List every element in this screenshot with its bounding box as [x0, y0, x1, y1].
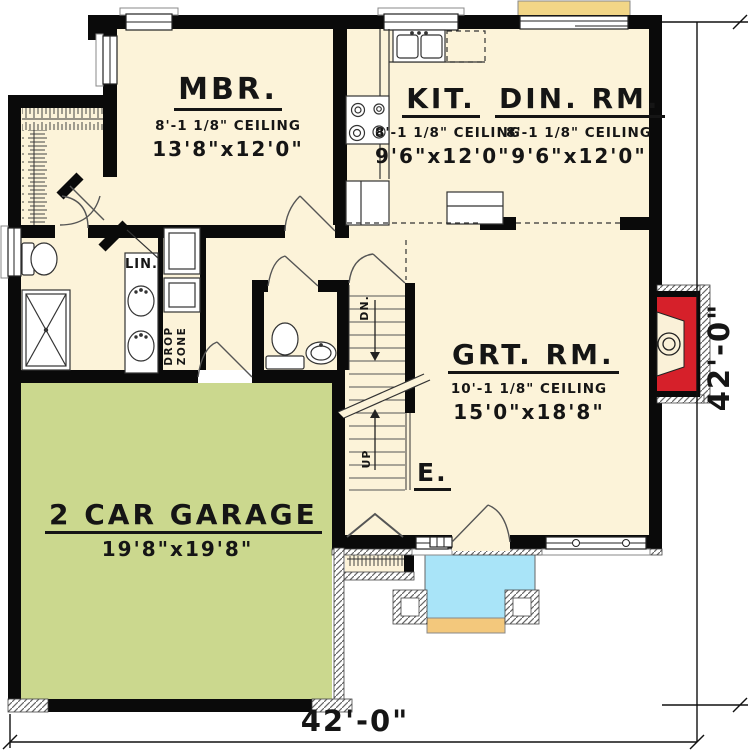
label-dining: DIN. RM. 8'-1 1/8" CEILING 9'6"x12'0" — [495, 84, 663, 168]
room-ceiling-kitchen: 8'-1 1/8" CEILING — [375, 125, 507, 141]
label-drop-zone: DROP ZONE — [163, 326, 189, 366]
garage-pier-left — [8, 699, 48, 712]
room-ceiling-dining: 8'-1 1/8" CEILING — [495, 125, 663, 141]
rear-deck — [518, 1, 630, 16]
powder-toilet-tank — [266, 356, 304, 369]
dimension-bottom: 42'-0" — [270, 704, 440, 738]
label-linen: LIN. — [125, 257, 165, 272]
label-mbr: MBR. 8'-1 1/8" CEILING 13'8"x12'0" — [148, 74, 308, 161]
toilet-bowl — [31, 243, 57, 275]
wall-left — [8, 95, 21, 712]
porch-pillar-right-core — [513, 598, 531, 616]
room-size-mbr: 13'8"x12'0" — [148, 137, 308, 161]
wall-garage-right — [332, 383, 345, 548]
front-door-opening — [452, 533, 510, 551]
porch-step — [427, 618, 505, 633]
wall-din-stub-2 — [620, 217, 649, 230]
sliding-door — [520, 16, 628, 29]
wall-hall-3 — [335, 225, 349, 238]
front-door-sidelite — [430, 537, 452, 547]
floor-plan-page: MBR. 8'-1 1/8" CEILING 13'8"x12'0" KIT. … — [0, 0, 750, 753]
buffet-cabinet — [447, 192, 503, 224]
refrigerator — [346, 181, 389, 225]
wall-powder-top-a — [252, 280, 268, 292]
room-name-mbr: MBR. — [174, 74, 282, 111]
wall-stair-east — [405, 283, 415, 413]
wall-powder-right — [337, 280, 349, 370]
wall-garage-top-a — [8, 370, 198, 383]
closet-south-wall — [344, 572, 414, 580]
room-ceiling-great-room: 10'-1 1/8" CEILING — [448, 381, 610, 397]
wall-wic-top — [8, 95, 117, 108]
room-name-kitchen: KIT. — [402, 84, 480, 118]
label-stairs-down: DN. — [356, 291, 372, 325]
room-name-dining: DIN. RM. — [495, 84, 665, 118]
room-size-kitchen: 9'6"x12'0" — [375, 144, 507, 168]
room-name-great-room: GRT. RM. — [448, 340, 619, 374]
room-size-dining: 9'6"x12'0" — [495, 144, 663, 168]
label-kitchen: KIT. 8'-1 1/8" CEILING 9'6"x12'0" — [375, 84, 507, 168]
drop-zone-line2: ZONE — [176, 326, 189, 365]
dimension-right: 42'-0" — [699, 297, 739, 417]
label-garage: 2 CAR GARAGE 19'8"x19'8" — [45, 500, 310, 561]
entry-name: E. — [414, 458, 451, 491]
room-name-garage: 2 CAR GARAGE — [45, 500, 322, 534]
label-great-room: GRT. RM. 10'-1 1/8" CEILING 15'0"x18'8" — [448, 340, 610, 424]
drop-zone-line1: DROP — [163, 326, 176, 365]
wall-dropzone-divider — [200, 228, 206, 370]
label-stairs-up: UP — [358, 444, 374, 474]
wall-kitchen-left — [333, 29, 347, 225]
room-size-garage: 19'8"x19'8" — [45, 537, 310, 561]
wall-powder-left — [252, 280, 264, 375]
room-ceiling-mbr: 8'-1 1/8" CEILING — [148, 118, 308, 134]
garage-front-wall — [334, 548, 344, 700]
wall-garage-top-b — [252, 370, 345, 383]
label-entry: E. — [414, 458, 462, 491]
powder-toilet-bowl — [272, 323, 298, 355]
porch-pillar-left-core — [401, 598, 419, 616]
room-size-great-room: 15'0"x18'8" — [448, 400, 610, 424]
